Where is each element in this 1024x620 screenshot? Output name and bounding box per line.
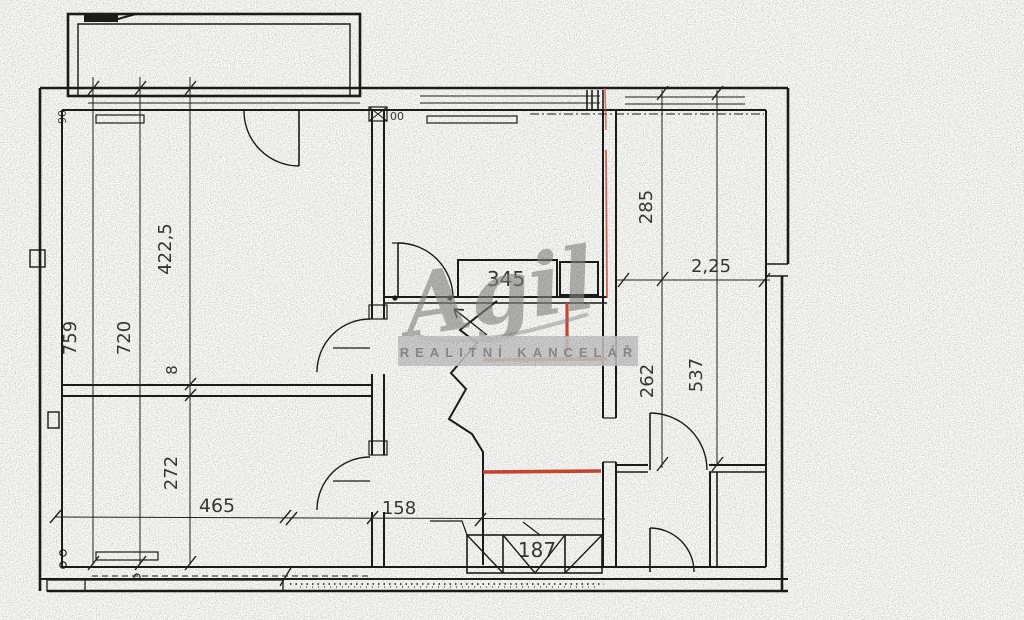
photocopy-noise-overlay	[0, 0, 1024, 620]
floor-plan-image: 422,5 759 720 8 272 465 158 187 345 285 …	[0, 0, 1024, 620]
floor-plan-svg: 422,5 759 720 8 272 465 158 187 345 285 …	[0, 0, 1024, 620]
